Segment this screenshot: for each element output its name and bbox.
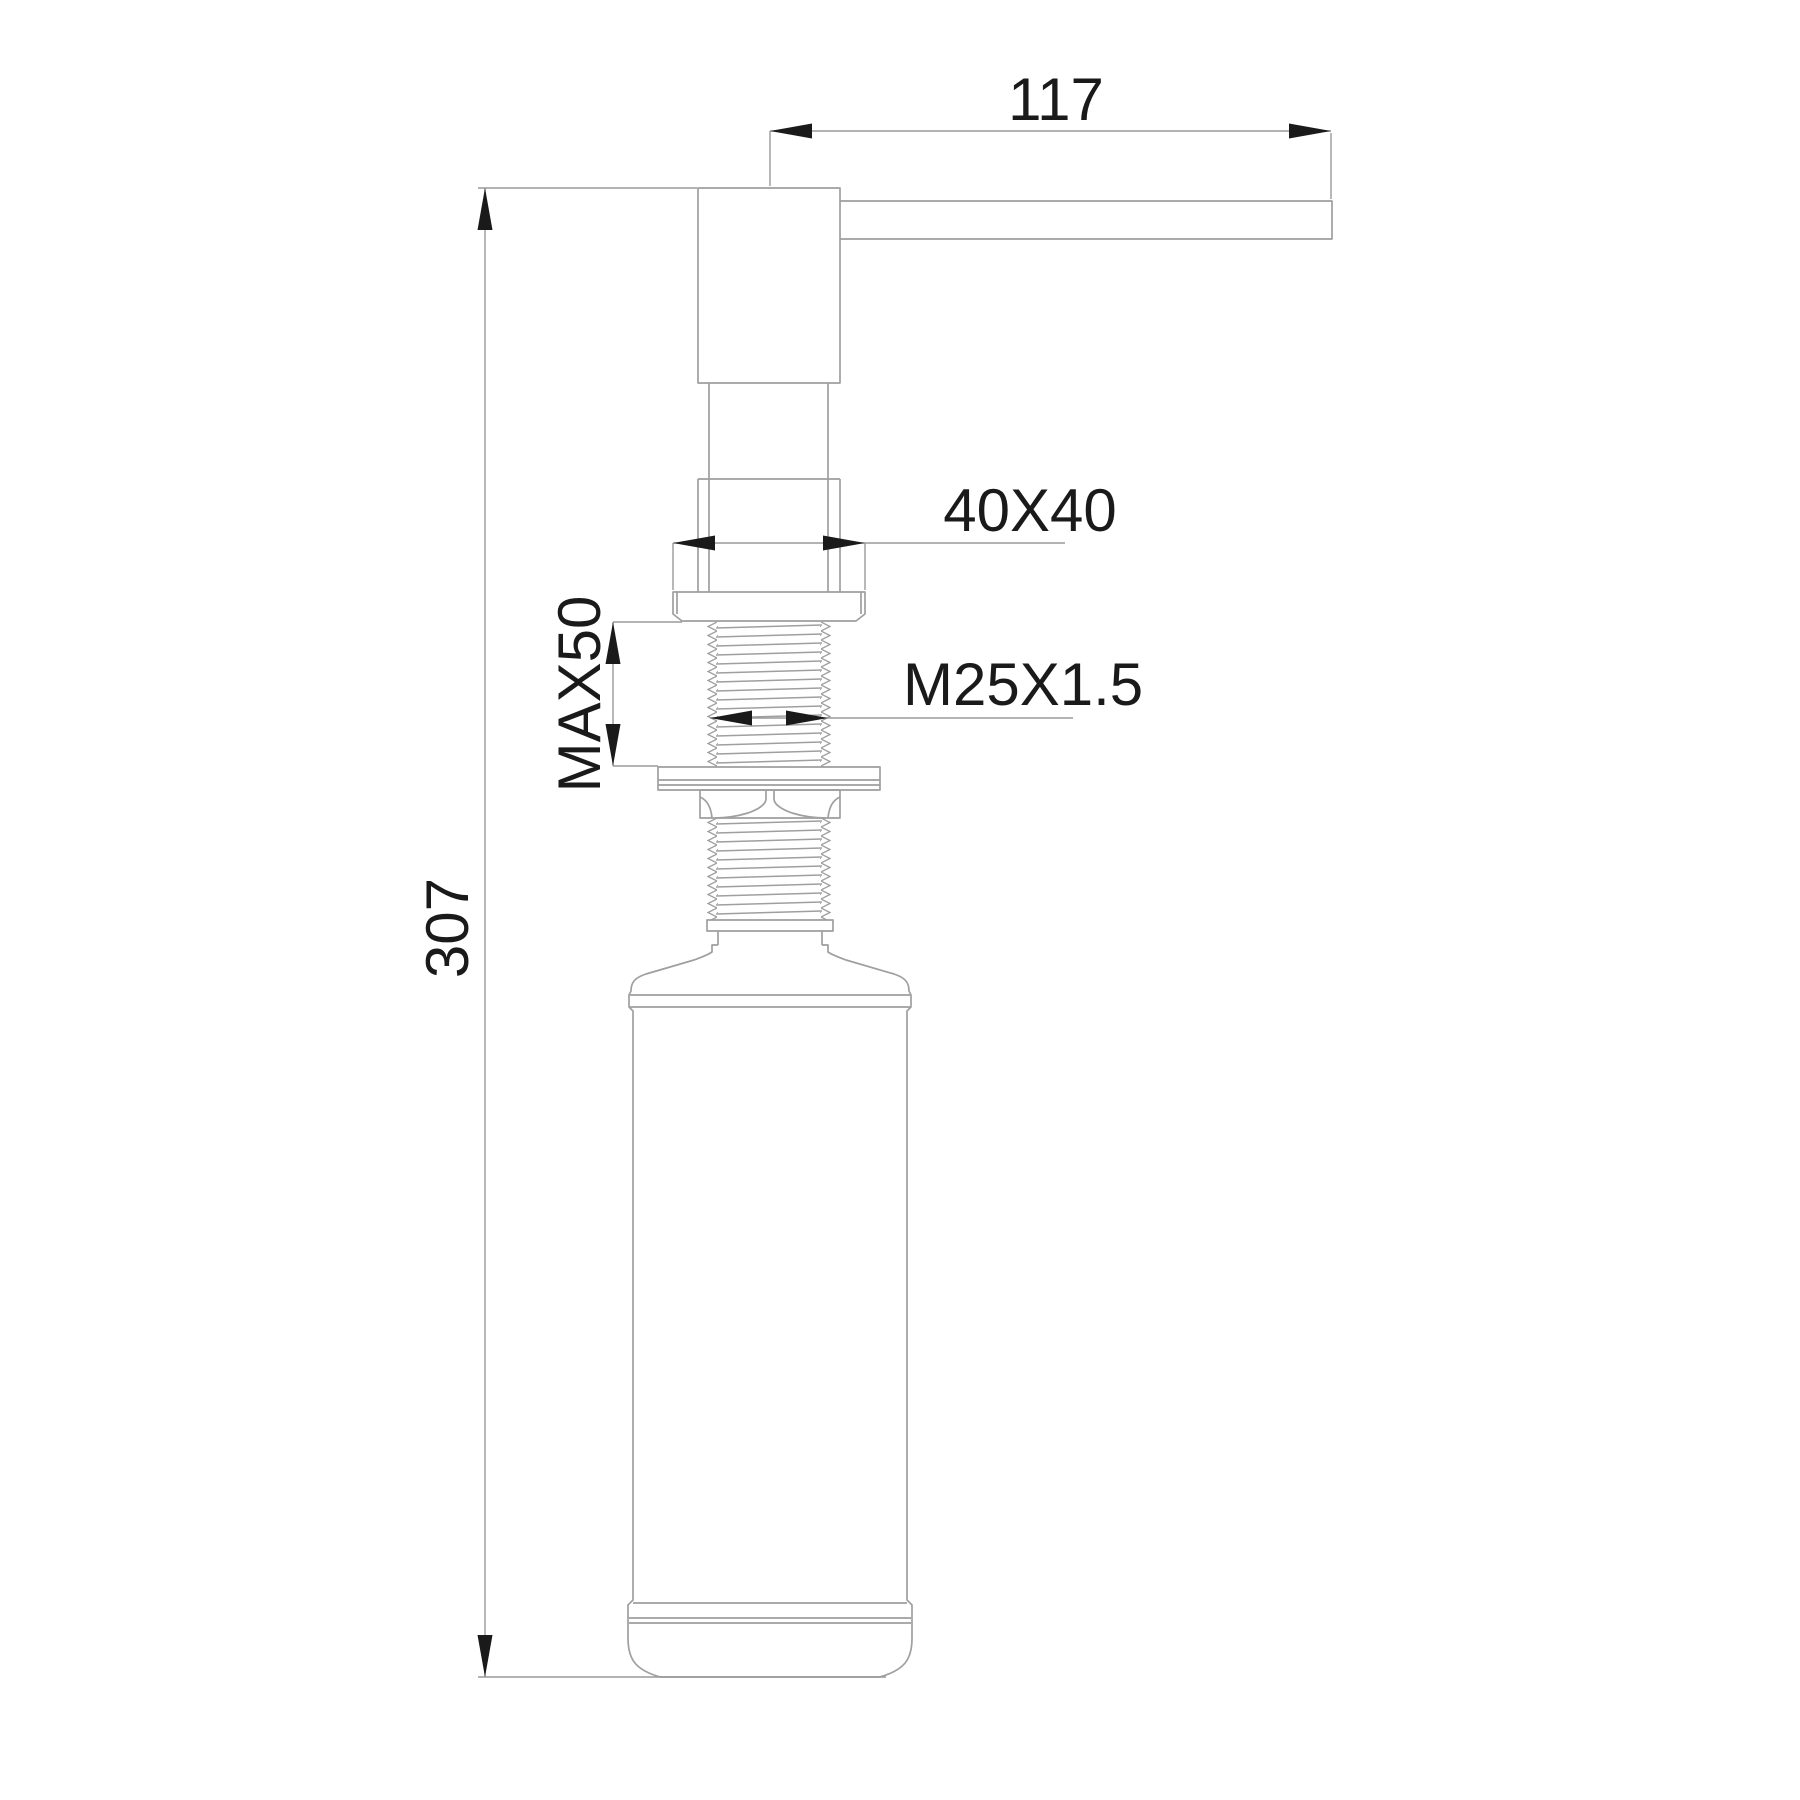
dim-307-label: 307: [414, 878, 481, 978]
nut-chamfer-left: [700, 797, 712, 818]
escutcheon-flange: [673, 592, 865, 621]
dim-117-arrow-left-icon: [770, 124, 812, 139]
nut-facet-right: [774, 790, 825, 818]
upper-thread-left-crests: [707, 622, 718, 767]
dimension-escutcheon: 40X40: [673, 477, 1117, 590]
bottle-profile: [628, 945, 912, 1677]
nut-body: [700, 790, 840, 818]
dim-max50-lines: [613, 622, 682, 766]
pump-head: [698, 188, 840, 383]
lock-nut: [700, 790, 840, 818]
lower-thread-shank: [707, 818, 831, 920]
dim-117-label: 117: [1008, 66, 1104, 133]
washer-lines: [658, 780, 880, 785]
spout: [840, 201, 1332, 239]
dimension-max-mounting: MAX50: [546, 596, 682, 793]
collar-ring: [707, 920, 833, 931]
escutcheon-flange-edge-lines: [677, 592, 861, 614]
washer-plate: [658, 767, 880, 790]
dispenser-outline: [628, 188, 1332, 1677]
technical-drawing-canvas: 117 40X40 MAX50 M25X1.5 307: [0, 0, 1800, 1800]
nut-facet-left: [715, 790, 766, 818]
dimension-spout-length: 117: [770, 66, 1331, 199]
dim-max50-label: MAX50: [546, 596, 613, 793]
dim-40x40-label: 40X40: [943, 477, 1117, 544]
dim-117-lines: [770, 131, 1331, 199]
soap-dispenser-drawing: 117 40X40 MAX50 M25X1.5 307: [0, 0, 1800, 1800]
dim-40x40-lines: [673, 543, 1065, 590]
bottle-neck: [718, 931, 822, 945]
upper-thread-shank: [707, 622, 831, 767]
dim-40x40-arrow-left-icon: [673, 536, 715, 551]
square-body: [698, 479, 840, 592]
dim-307-lines: [478, 188, 886, 1677]
upper-thread-right-crests: [820, 622, 831, 767]
lower-thread-right-crests: [820, 818, 831, 920]
washer: [658, 767, 880, 790]
dim-m25-label: M25X1.5: [903, 651, 1143, 718]
bottle-shoulder-bead: [630, 995, 910, 1007]
upper-thread-stripes: [716, 622, 822, 767]
bottle-bottom-bead: [629, 1603, 911, 1623]
lower-thread-left-crests: [707, 818, 718, 920]
nut-chamfer-right: [828, 797, 840, 818]
dim-40x40-arrow-right-icon: [823, 536, 865, 551]
dim-307-arrow-up-icon: [478, 188, 493, 230]
dim-117-arrow-right-icon: [1289, 124, 1331, 139]
dim-307-arrow-down-icon: [478, 1635, 493, 1677]
lower-thread-stripes: [716, 818, 822, 920]
dimension-overall-height: 307: [414, 188, 886, 1677]
piston-neck: [709, 383, 828, 479]
